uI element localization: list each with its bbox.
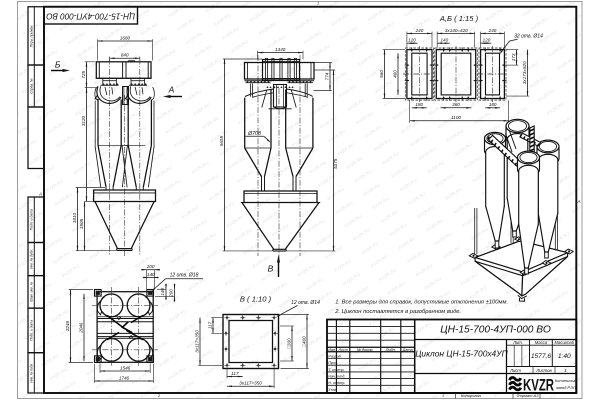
svg-text:Котельный: Котельный — [555, 378, 578, 383]
svg-text:Лист: Лист — [337, 348, 347, 352]
svg-text:360: 360 — [452, 102, 460, 107]
svg-text:Т. контр.: Т. контр. — [328, 368, 344, 372]
svg-text:180: 180 — [489, 102, 497, 107]
svg-text:140: 140 — [440, 38, 448, 43]
svg-text:12 отв. Ø14: 12 отв. Ø14 — [291, 300, 320, 306]
svg-text:ЦН-15-700-4УП-000 ВО: ЦН-15-700-4УП-000 ВО — [46, 11, 135, 20]
svg-text:120: 120 — [483, 38, 491, 43]
svg-text:В: В — [268, 264, 274, 274]
svg-text:2246: 2246 — [65, 320, 70, 332]
svg-text:1505: 1505 — [79, 218, 84, 229]
svg-text:140: 140 — [147, 272, 155, 277]
svg-text:2. Циклон поставляется в разоб: 2. Циклон поставляется в разобранном вид… — [334, 309, 461, 315]
svg-text:Утв.: Утв. — [328, 388, 337, 392]
svg-text:Справ. №: Справ. № — [30, 78, 34, 94]
svg-text:А: А — [168, 85, 175, 95]
svg-text:Копировал: Копировал — [461, 393, 482, 398]
svg-text:240: 240 — [488, 28, 497, 33]
svg-text:3х117=350: 3х117=350 — [239, 381, 262, 386]
svg-text:Масса: Масса — [535, 340, 548, 345]
svg-text:Лит.: Лит. — [512, 340, 523, 345]
svg-text:5375: 5375 — [333, 158, 338, 169]
svg-text:240: 240 — [415, 28, 424, 33]
svg-text:Масштаб: Масштаб — [555, 340, 575, 345]
svg-text:180: 180 — [415, 102, 423, 107]
svg-text:Инв. № дубл.: Инв. № дубл. — [30, 249, 34, 269]
svg-text:725: 725 — [81, 70, 86, 78]
svg-text:460: 460 — [393, 70, 398, 78]
svg-text:Подп.: Подп. — [386, 348, 396, 352]
svg-text:117: 117 — [231, 371, 239, 376]
svg-text:Нач. отд.: Нач. отд. — [328, 375, 345, 379]
svg-text:1546: 1546 — [120, 365, 131, 370]
svg-text:32 отв. Ø14: 32 отв. Ø14 — [514, 34, 543, 40]
svg-text:120: 120 — [408, 38, 416, 43]
svg-text:Циклон ЦН-15-700х4УП: Циклон ЦН-15-700х4УП — [415, 349, 508, 359]
svg-text:1746: 1746 — [119, 375, 130, 380]
svg-text:В ( 1:10 ): В ( 1:10 ) — [240, 295, 272, 304]
svg-text:1680: 1680 — [120, 35, 131, 40]
svg-text:Изм: Изм — [328, 348, 335, 352]
svg-text:№ докум.: № докум. — [357, 348, 374, 352]
svg-text:А: А — [577, 199, 581, 204]
svg-text:1100: 1100 — [451, 115, 461, 120]
svg-text:1:40: 1:40 — [558, 353, 571, 360]
svg-text:Инв. № подл.: Инв. № подл. — [30, 363, 34, 383]
svg-text:KVZR: KVZR — [523, 376, 554, 395]
svg-text:3х173=520: 3х173=520 — [522, 61, 527, 84]
svg-text:173: 173 — [511, 53, 516, 61]
svg-text:1. Все размеры для справок, до: 1. Все размеры для справок, допустимые о… — [335, 300, 508, 306]
svg-text:Подп. и дата: Подп. и дата — [30, 209, 34, 230]
svg-text:Б: Б — [55, 60, 61, 70]
svg-text:3х117=350: 3х117=350 — [195, 330, 200, 353]
svg-text:1577,6: 1577,6 — [531, 353, 552, 360]
svg-text:12 отв. Ø18: 12 отв. Ø18 — [170, 273, 199, 279]
svg-text:Подп. и дата: Подп. и дата — [30, 320, 34, 341]
svg-text:117: 117 — [208, 321, 213, 329]
svg-text:Пров.: Пров. — [328, 361, 338, 365]
svg-text:200: 200 — [146, 264, 155, 269]
svg-text:Листов: Листов — [535, 368, 552, 373]
svg-text:Разраб.: Разраб. — [328, 354, 342, 358]
svg-text:□400: □400 — [302, 336, 307, 347]
svg-text:Перв. примен.: Перв. примен. — [30, 25, 34, 48]
svg-text:2046: 2046 — [79, 322, 84, 334]
svg-text:Н. контр.: Н. контр. — [328, 381, 345, 385]
svg-text:840: 840 — [121, 53, 129, 58]
svg-text:А: А — [38, 192, 42, 197]
svg-text:Взам. инв. №: Взам. инв. № — [30, 281, 34, 301]
svg-text:1: 1 — [317, 2, 319, 6]
svg-text:560: 560 — [379, 70, 384, 78]
svg-text:3х140=420: 3х140=420 — [445, 28, 468, 33]
svg-text:Лист: Лист — [509, 368, 521, 373]
svg-text:1: 1 — [564, 368, 566, 373]
svg-text:1340: 1340 — [275, 47, 286, 52]
svg-text:1: 1 — [442, 394, 444, 398]
svg-text:Формат А3: Формат А3 — [517, 393, 540, 398]
svg-text:завод РЭП: завод РЭП — [555, 385, 576, 390]
svg-text:5655: 5655 — [219, 135, 224, 146]
svg-text:140: 140 — [160, 287, 165, 295]
svg-text:А,Б ( 1:15 ): А,Б ( 1:15 ) — [439, 14, 479, 23]
svg-text:Дата: Дата — [402, 348, 413, 352]
svg-text:3120: 3120 — [81, 115, 86, 126]
svg-text:□300: □300 — [287, 338, 292, 349]
svg-text:1810: 1810 — [72, 212, 77, 223]
svg-text:774: 774 — [325, 72, 330, 80]
svg-text:ЦН-15-700-4УП-000 ВО: ЦН-15-700-4УП-000 ВО — [440, 325, 551, 336]
